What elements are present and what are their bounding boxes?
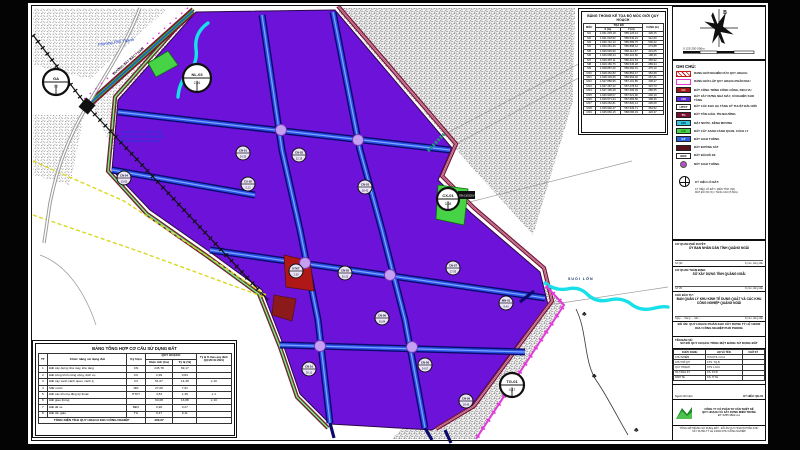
svg-text:CN-08: CN-08: [421, 361, 430, 365]
coordinate-table: MỐC TỌA ĐỘ CẠNH (m) X (m) Y (m) M11.631.…: [583, 23, 664, 116]
signature-section: CHỨC DANHHỌ VÀ TÊNCHỮ KÝ CHỦ NHIỆMThS.KT…: [673, 349, 765, 385]
parcel-label-circle: CX-025,12: [241, 177, 255, 191]
legend-item-label: ĐẤT CÔNG TRÌNH CÔNG CỘNG, DỊCH VỤ: [694, 89, 752, 92]
legend-item-label: ĐẤT ĐƯỜNG SẮT: [694, 146, 719, 149]
coordinate-table-box: BẢNG THỐNG KÊ TỌA ĐỘ MỐC GIỚI QUY HOẠCH …: [578, 8, 668, 135]
legend-item-label: ĐẤT XÂY DỰNG NHÀ MÁY, XÍ NGHIỆP, KHO TÀN…: [694, 95, 762, 102]
investor-section: CHỦ ĐẦU TƯ: BAN QUẢN LÝ KHU KINH TẾ DUNG…: [673, 292, 765, 322]
legend-swatch-icon: [680, 161, 687, 168]
investor-value: BAN QUẢN LÝ KHU KINH TẾ DUNG QUẤT VÀ CÁC…: [675, 298, 763, 306]
company-section: CÔNG TY CỔ PHẦN TƯ VẤN THIẾT KẾ QUY HOẠC…: [673, 400, 765, 426]
parcel-label-circle: CN-0727,93: [446, 261, 460, 275]
parcel-label-circle: CN-0328,42: [358, 180, 372, 194]
signature-cell: KINH TẾ: [674, 375, 706, 380]
legend-item: CNĐẤT XÂY DỰNG NHÀ MÁY, XÍ NGHIỆP, KHO T…: [676, 95, 762, 102]
svg-text:TG-01: TG-01: [506, 379, 518, 384]
coordinate-row: M191.625.660,15588.086,33420,37: [583, 111, 663, 115]
legend-item-label: ĐẤT TÔN GIÁO, TÍN NGƯỠNG: [694, 113, 736, 116]
compass-svg: B 0 125 250 500m: [673, 7, 764, 58]
legend-item: RANH GIỚI LẬP QUY HOẠCH PHÂN KHU: [676, 79, 762, 85]
svg-text:CN-10: CN-10: [305, 365, 314, 369]
legend-item-subline: MẬT ĐỘ XD (%) / TẦNG CAO (TẦNG): [695, 191, 738, 194]
legend-box: GHI CHÚ: RANH GIỚI NGHIÊN CỨU QUY HOẠCHR…: [672, 60, 766, 240]
screenshot-stage: CN-0124,35CN-0222,18CN-0328,42CN-0415,60…: [0, 0, 800, 450]
legend-item: KÝ HIỆU LÔ ĐẤT:KÝ HIỆU LÔ ĐẤT / DIỆN TÍC…: [676, 170, 762, 194]
legend-items: RANH GIỚI NGHIÊN CỨU QUY HOẠCHRANH GIỚI …: [676, 71, 762, 194]
svg-text:CN-09: CN-09: [462, 397, 471, 401]
parcel-label-circle: CN-0824,07: [418, 358, 432, 372]
svg-text:5,12: 5,12: [245, 185, 251, 189]
legend-swatch-icon: MN: [676, 120, 691, 126]
svg-text:2,35: 2,35: [293, 272, 299, 276]
svg-text:15,60: 15,60: [121, 179, 128, 183]
pipe-label-3: THEO ĐƯỜNG QUY HOẠCH: [120, 138, 160, 143]
parcel-label-circle: CN-1020,11: [302, 362, 316, 376]
svg-text:27,93: 27,93: [450, 269, 457, 273]
approval-sign-right: Ký tên, đóng dấu: [745, 262, 763, 265]
note-left: Người thể hiện:: [675, 395, 693, 398]
node-label-circle: NL-032,16: [183, 64, 211, 92]
approval-sign-row: Số QĐ: Ký tên, đóng dấu: [675, 260, 763, 265]
parcel-label-circle: CN-0626,84: [375, 311, 389, 325]
svg-text:CN-06: CN-06: [378, 314, 387, 318]
legend-swatch-icon: [676, 71, 691, 77]
caption-line-2: XÂY DỰNG TỶ LỆ 1/2000 KHU CÔNG NGHIỆP: [675, 430, 763, 433]
land-use-table-inner: BẢNG TỔNG HỢP CƠ CẤU SỬ DỤNG ĐẤT TT Chức…: [35, 343, 235, 436]
review-sign-right: Ký tên, đóng dấu: [745, 287, 763, 290]
parcel-label-circle: CN-0222,18: [292, 148, 306, 162]
pipe-label-2: HIỆN TRẠNG DI DỜI (DỰ KIẾN): [120, 134, 164, 139]
land-use-total-cell: TỔNG DIỆN TÍCH QUY HOẠCH KHU CÔNG NGHIỆP: [38, 418, 145, 424]
caption-section: TỔNG MẶT BẰNG SỬ DỤNG ĐẤT - ĐỒ ÁN QUY HO…: [673, 426, 765, 440]
scale-ticks: 0 125 250 500m: [683, 47, 705, 51]
legend-item-label: ĐẤT CÂY XANH CẢNH QUAN, CÁCH LY: [694, 130, 748, 133]
svg-text:NL-03: NL-03: [191, 72, 203, 77]
lu-col-tt: TT: [38, 353, 48, 366]
signature-table: CHỨC DANHHỌ VÀ TÊNCHỮ KÝ CHỦ NHIỆMThS.KT…: [673, 349, 765, 381]
legend-swatch-icon: BĐX: [676, 153, 691, 159]
coordinate-table-inner: BẢNG THỐNG KÊ TỌA ĐỘ MỐC GIỚI QUY HOẠCH …: [581, 11, 666, 133]
legend-item: NÚT GIAO THÔNG: [676, 161, 762, 168]
scale-bar: 0 125 250 500m: [683, 47, 754, 54]
signature-cell: KS. H.T.E: [706, 375, 742, 380]
svg-text:CN-05: CN-05: [341, 269, 350, 273]
svg-text:3,08: 3,08: [445, 202, 452, 206]
land-use-total-cell: [197, 418, 231, 424]
svg-text:20,11: 20,11: [306, 370, 313, 374]
approval-value: ỦY BAN NHÂN DÂN TỈNH QUẢNG NGÃI: [675, 247, 763, 251]
node-label-circle: TG-010,47: [500, 373, 524, 397]
legend-swatch-icon: [676, 79, 691, 85]
svg-text:22,18: 22,18: [296, 156, 303, 160]
legend-item: HTKTĐẤT CÁC KHU HẠ TẦNG KỸ THUẬT ĐẦU MỐI: [676, 104, 762, 110]
coordinate-row-cell: M19: [583, 111, 595, 115]
svg-text:MN-01: MN-01: [502, 299, 511, 303]
legend-swatch-icon: CX: [676, 128, 691, 134]
col-canh: CẠNH (m): [642, 23, 663, 32]
svg-text:2,16: 2,16: [194, 81, 201, 85]
svg-text:GA: GA: [53, 76, 59, 81]
legend-item: TGĐẤT TÔN GIÁO, TÍN NGƯỠNG: [676, 112, 762, 118]
land-use-table-title: BẢNG TỔNG HỢP CƠ CẤU SỬ DỤNG ĐẤT: [38, 346, 232, 351]
investor-sign-row: Ngày … tháng … năm … Ký tên, đóng dấu: [675, 316, 763, 321]
svg-text:30,25: 30,25: [342, 274, 349, 278]
svg-text:CN-01: CN-01: [239, 149, 248, 153]
land-use-total-cell: 466,07: [145, 418, 173, 424]
stream-label: SUỐI LỚN: [568, 276, 594, 281]
legend-swatch-icon: CC: [676, 87, 691, 93]
approval-section: CƠ QUAN PHÊ DUYỆT: ỦY BAN NHÂN DÂN TỈNH …: [673, 241, 765, 267]
legend-item: MNMẶT NƯỚC, KÊNH MƯƠNG: [676, 120, 762, 126]
drawing-value: SƠ ĐỒ QUY HOẠCH TỔNG MẶT BẰNG SỬ DỤNG ĐẤ…: [675, 342, 763, 346]
pipe-label-1: TUYẾN ỐNG CẤP NƯỚC THÔ: [120, 129, 163, 134]
legend-item: GTĐẤT GIAO THÔNG: [676, 136, 762, 142]
coordinate-table-title: BẢNG THỐNG KÊ TỌA ĐỘ MỐC GIỚI QUY HOẠCH: [583, 14, 664, 22]
legend-swatch-icon: CN: [676, 96, 691, 102]
svg-text:0,47: 0,47: [509, 388, 516, 392]
substation-label: TBA 110/22KV: [459, 195, 475, 198]
svg-text:CN-07: CN-07: [449, 264, 458, 268]
investor-sign-right: Ký tên, đóng dấu: [745, 317, 763, 320]
node-label-circle: CX-013,08: [437, 188, 459, 210]
compass-box: B 0 125 250 500m: [672, 6, 766, 60]
legend-item-label: MẶT NƯỚC, KÊNH MƯƠNG: [694, 122, 732, 125]
parcel-label-circle: MN-018,40: [499, 296, 513, 310]
legend-item: CCĐẤT CÔNG TRÌNH CÔNG CỘNG, DỊCH VỤ: [676, 87, 762, 93]
map-sheet: CN-0124,35CN-0222,18CN-0328,42CN-0415,60…: [28, 3, 768, 444]
svg-text:CN-03: CN-03: [361, 183, 370, 187]
svg-text:TT: TT: [54, 85, 58, 89]
parcel-label-circle: CN-0415,60: [117, 171, 131, 185]
svg-text:HTKT: HTKT: [292, 267, 300, 271]
company-text: CÔNG TY CỔ PHẦN TƯ VẤN THIẾT KẾ QUY HOẠC…: [695, 408, 763, 418]
lu-col-norm: Tỷ lệ % theo quy định (QCVN 01:2021): [197, 353, 231, 366]
review-value: SỞ XÂY DỰNG TỈNH QUẢNG NGÃI: [675, 273, 763, 277]
legend-swatch-icon: HTKT: [676, 104, 691, 110]
svg-text:28,42: 28,42: [362, 188, 369, 192]
svg-text:24,07: 24,07: [422, 366, 429, 370]
investor-sign-left: Ngày … tháng … năm …: [675, 317, 702, 320]
svg-text:CX-02: CX-02: [244, 180, 252, 184]
tree-symbol-3: ♣: [634, 427, 639, 434]
review-sign-row: Số VB: Ký tên, đóng dấu: [675, 286, 763, 291]
svg-text:26,84: 26,84: [379, 319, 386, 323]
coordinate-row-cell: 1.625.660,15: [595, 111, 620, 115]
svg-text:24,35: 24,35: [240, 154, 247, 158]
land-use-table: TT Chức năng sử dụng đất Ký hiệu QUY HOẠ…: [38, 353, 232, 425]
legend-item-label: KÝ HIỆU LÔ ĐẤT:: [695, 180, 719, 184]
project-line-2: KHU CÔNG NGHIỆP PHỔ PHONG: [675, 327, 763, 331]
legend-item-label: NÚT GIAO THÔNG: [694, 163, 719, 166]
parcel-label-circle: CN-0530,25: [338, 266, 352, 280]
drawing-section: TÊN BẢN VẼ: SƠ ĐỒ QUY HOẠCH TỔNG MẶT BẰN…: [673, 337, 765, 349]
tree-symbol-1: ♣: [582, 311, 587, 318]
legend-item-label: RANH GIỚI NGHIÊN CỨU QUY HOẠCH: [694, 72, 747, 75]
lu-col-code: Ký hiệu: [127, 353, 145, 366]
company-line-3: ĐT: 0255.3822.xxx: [695, 414, 763, 417]
land-use-total-row: TỔNG DIỆN TÍCH QUY HOẠCH KHU CÔNG NGHIỆP…: [38, 418, 231, 424]
parcel-label-circle: CN-0918,46: [459, 394, 473, 408]
lu-col-name: Chức năng sử dụng đất: [48, 353, 127, 366]
legend-swatch-icon: GT: [676, 136, 691, 142]
project-section: ĐỒ ÁN: QUY HOẠCH PHÂN KHU XÂY DỰNG TỶ LỆ…: [673, 322, 765, 337]
legend-item-label: ĐẤT GIAO THÔNG: [694, 138, 719, 141]
legend-item: BĐXĐẤT BÃI ĐỖ XE: [676, 153, 762, 159]
title-block: CƠ QUAN PHÊ DUYỆT: ỦY BAN NHÂN DÂN TỈNH …: [672, 240, 766, 441]
legend-item: CXĐẤT CÂY XANH CẢNH QUAN, CÁCH LY: [676, 128, 762, 134]
svg-text:CN-04: CN-04: [120, 174, 129, 178]
legend-item-label: RANH GIỚI LẬP QUY HOẠCH PHÂN KHU: [694, 80, 750, 83]
legend-item: ĐẤT ĐƯỜNG SẮT: [676, 145, 762, 151]
signature-cell: [742, 375, 764, 380]
coordinate-row-cell: 588.086,33: [620, 111, 642, 115]
legend-swatch-icon: TG: [676, 112, 691, 118]
col-moc: MỐC: [583, 23, 595, 32]
land-use-total-cell: [173, 418, 197, 424]
legend-swatch-icon: [679, 176, 690, 187]
tree-symbol-2: ♣: [592, 373, 597, 380]
legend-item: RANH GIỚI NGHIÊN CỨU QUY HOẠCH: [676, 71, 762, 77]
svg-text:CN-02: CN-02: [295, 151, 304, 155]
approval-sign-left: Số QĐ:: [675, 262, 683, 265]
note-section: Người thể hiện: KÝ HIỆU: QH-04: [673, 385, 765, 401]
legend-title: GHI CHÚ:: [676, 64, 762, 69]
svg-text:18,46: 18,46: [463, 402, 470, 406]
legend-item-label: ĐẤT CÁC KHU HẠ TẦNG KỸ THUẬT ĐẦU MỐI: [694, 105, 757, 108]
sheet-number: KÝ HIỆU: QH-04: [743, 395, 763, 398]
review-sign-left: Số VB:: [675, 287, 682, 290]
parcel-label-circle: CN-0124,35: [236, 146, 250, 160]
land-use-table-box: BẢNG TỔNG HỢP CƠ CẤU SỬ DỤNG ĐẤT TT Chức…: [32, 340, 237, 438]
legend-item-label: ĐẤT BÃI ĐỖ XE: [694, 154, 716, 157]
review-section: CƠ QUAN THẨM ĐỊNH: SỞ XÂY DỰNG TỈNH QUẢN…: [673, 267, 765, 293]
company-logo: [675, 405, 693, 421]
coordinate-row-cell: 420,37: [642, 111, 663, 115]
legend-swatch-icon: [676, 145, 691, 151]
svg-text:CX-01: CX-01: [442, 193, 454, 198]
node-label-circle: GATT: [43, 69, 69, 95]
parcel-label-circle: HTKT2,35: [289, 264, 303, 278]
svg-text:8,40: 8,40: [503, 304, 509, 308]
signature-row: KINH TẾKS. H.T.E: [674, 375, 765, 380]
